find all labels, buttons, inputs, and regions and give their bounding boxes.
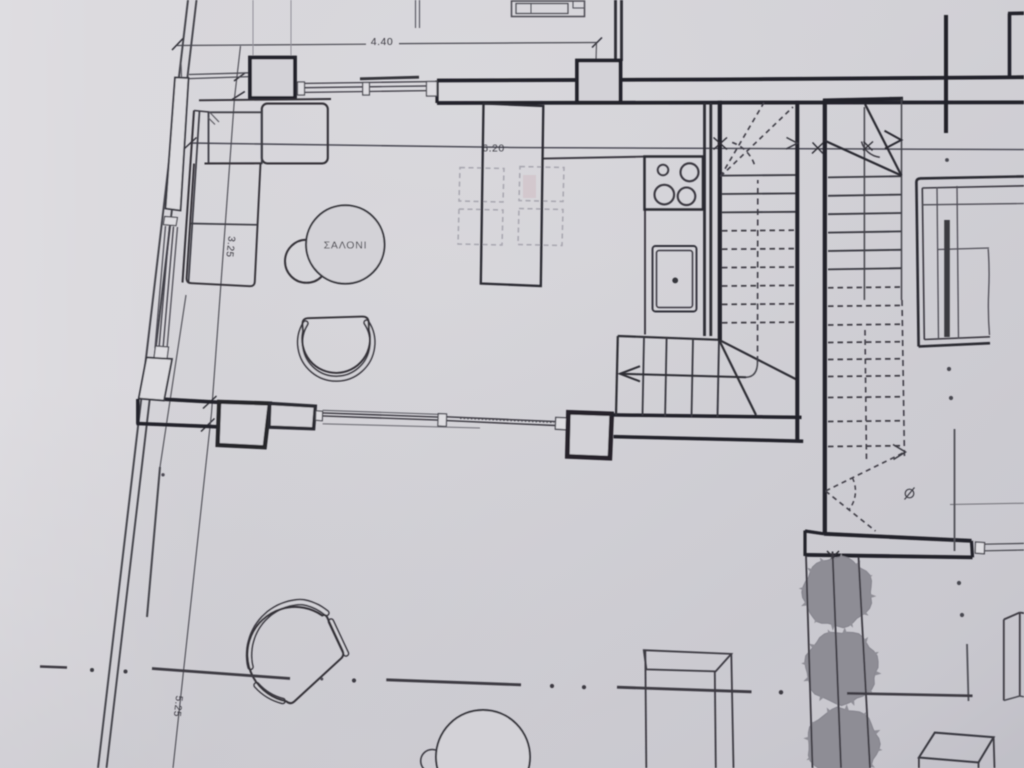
svg-text:ΣΑΛΟΝΙ: ΣΑΛΟΝΙ — [324, 240, 368, 252]
svg-text:4.40: 4.40 — [371, 36, 393, 48]
svg-text:3.25: 3.25 — [223, 236, 236, 259]
svg-text:6.20: 6.20 — [482, 143, 504, 155]
svg-text:5.25: 5.25 — [171, 695, 184, 718]
